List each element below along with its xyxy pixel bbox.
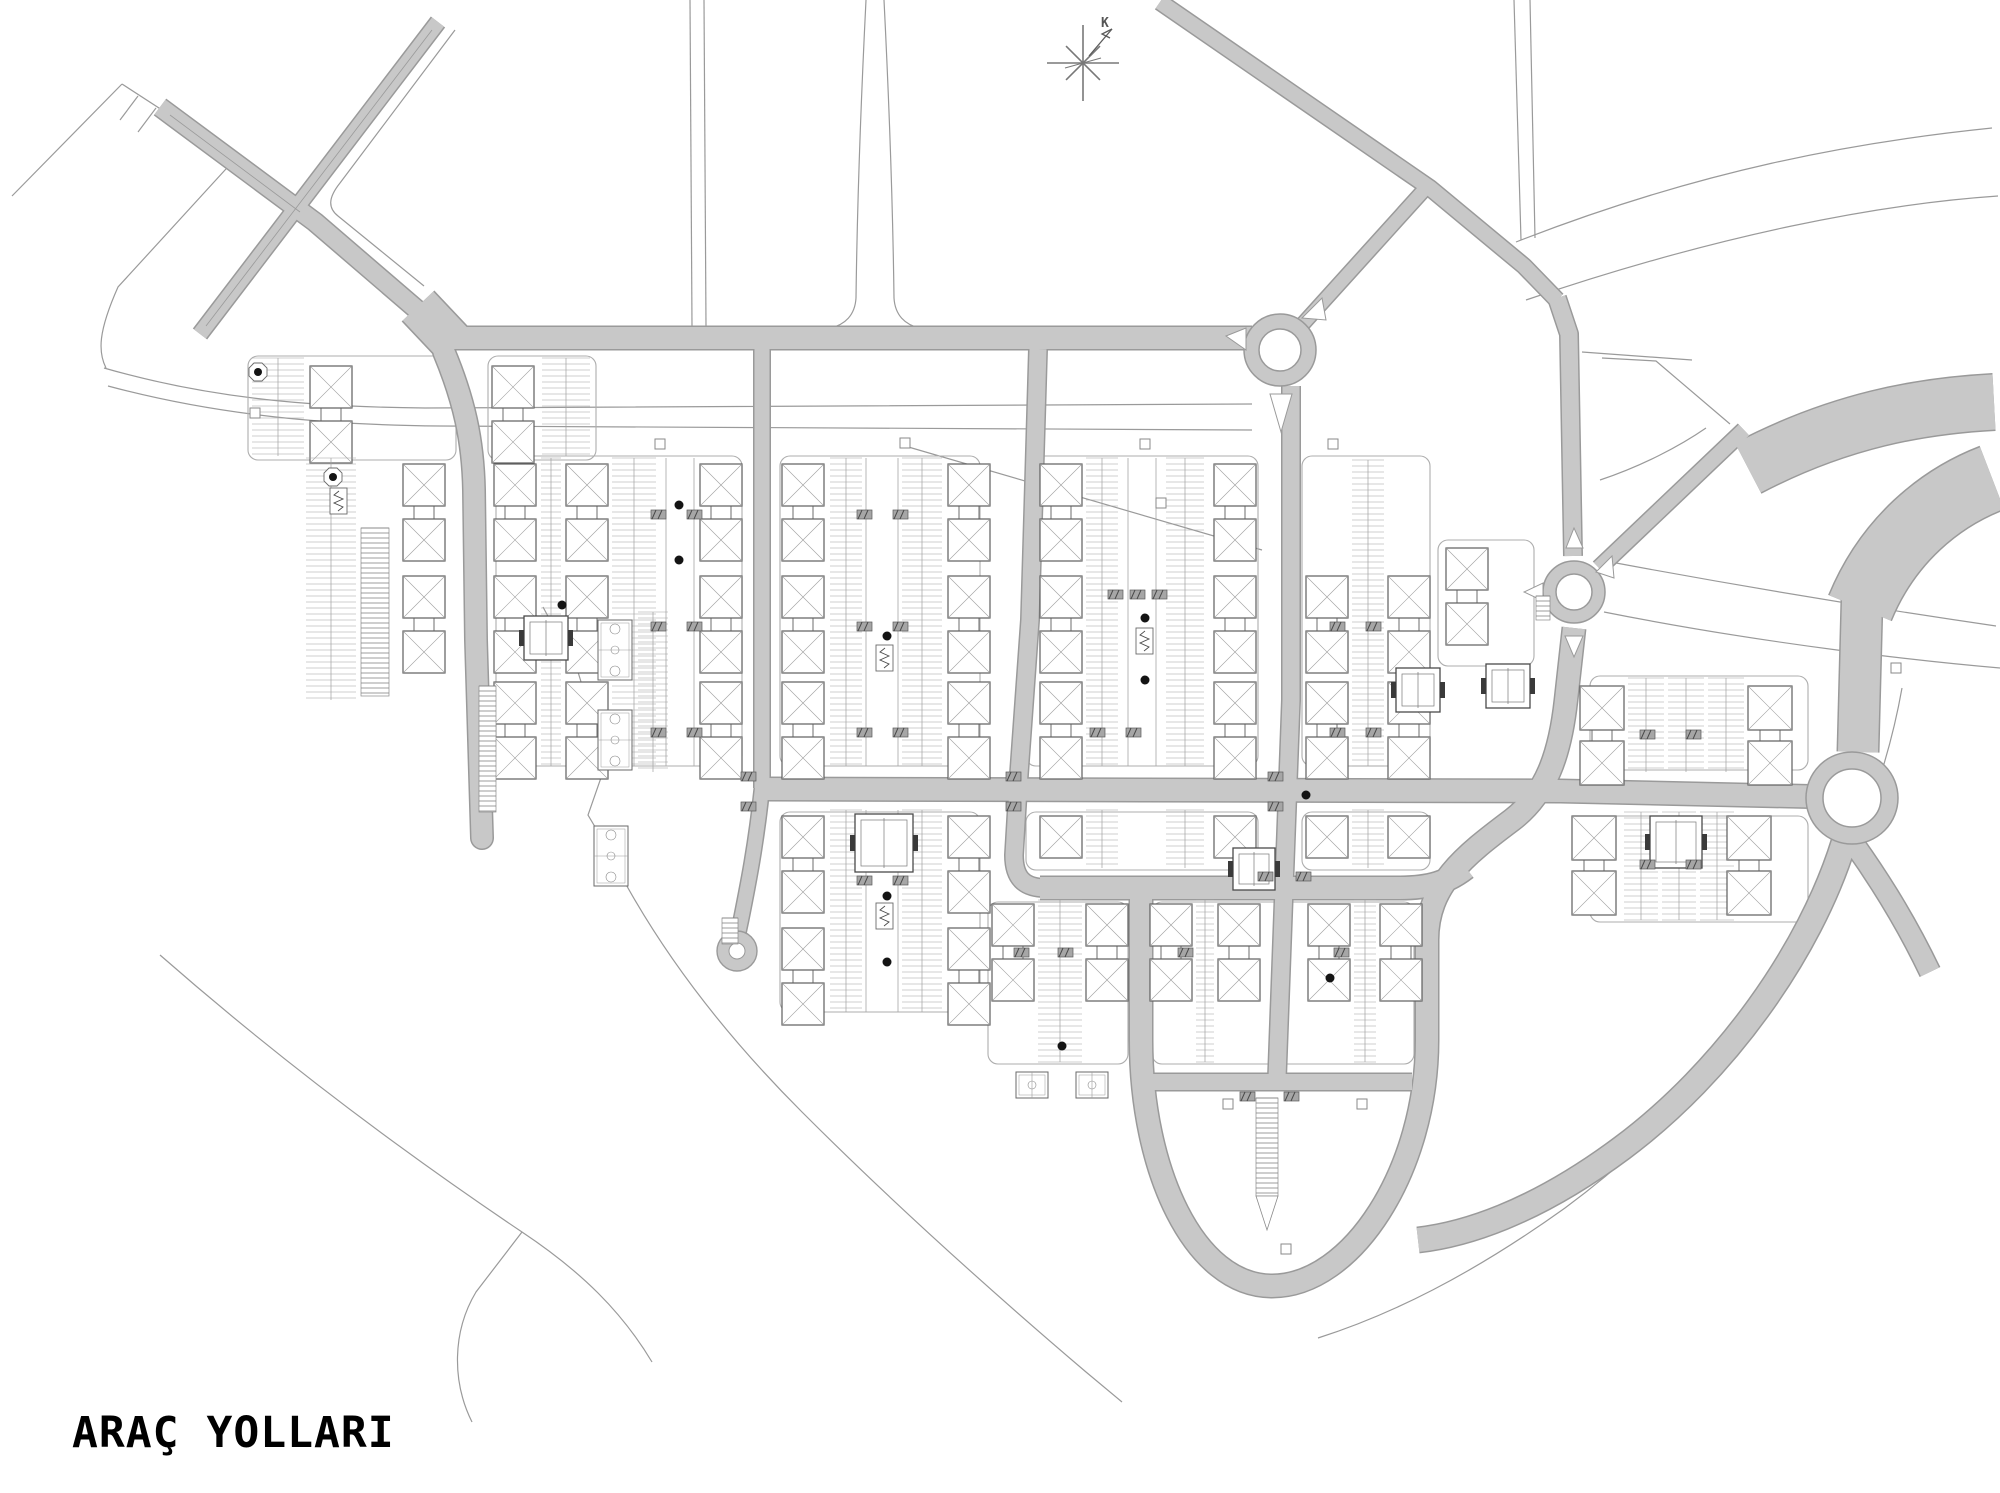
tree-icon bbox=[883, 632, 892, 641]
compass-north-label: K bbox=[1101, 16, 1109, 31]
utility-marker bbox=[1140, 439, 1150, 449]
stairs-strip bbox=[722, 918, 738, 944]
building-connector bbox=[959, 618, 979, 631]
tree-icon bbox=[254, 368, 262, 376]
building-connector bbox=[1399, 618, 1419, 631]
building-connector bbox=[793, 724, 813, 737]
building-connector bbox=[1399, 724, 1419, 737]
core-bar bbox=[1530, 678, 1535, 694]
thin-road-line bbox=[1516, 128, 1992, 242]
road-v6-and-loop bbox=[1141, 628, 1574, 1286]
utility-marker bbox=[655, 439, 665, 449]
stairs-strip bbox=[479, 686, 496, 812]
tree-icon bbox=[1058, 1042, 1067, 1051]
building-connector bbox=[959, 858, 979, 871]
building-connector bbox=[959, 506, 979, 519]
building-connector bbox=[577, 618, 597, 631]
roundabout-island bbox=[1556, 574, 1592, 610]
thin-road-line bbox=[1604, 612, 2000, 668]
tree-icon bbox=[883, 892, 892, 901]
thin-road-line bbox=[120, 96, 138, 120]
road-edge-arc-south bbox=[1418, 842, 1844, 1240]
core-bar bbox=[913, 835, 918, 851]
core-bar bbox=[568, 630, 573, 646]
building-connector bbox=[1051, 724, 1071, 737]
legend-title: ARAÇ YOLLARI bbox=[72, 1408, 395, 1458]
utility-marker bbox=[1891, 663, 1901, 673]
tree-icon bbox=[1302, 791, 1311, 800]
thin-road-line bbox=[704, 0, 706, 326]
core-bar bbox=[1275, 861, 1280, 877]
thin-road-line bbox=[457, 1232, 522, 1422]
site-plan-page: K ARAÇ YOLLARI bbox=[0, 0, 2000, 1493]
building-connector bbox=[577, 506, 597, 519]
core-bar bbox=[1645, 834, 1650, 850]
utility-marker bbox=[1156, 498, 1166, 508]
building-connector bbox=[793, 858, 813, 871]
thin-road-line bbox=[690, 0, 692, 326]
building-connector bbox=[321, 408, 341, 421]
thin-road-line bbox=[1526, 196, 1998, 300]
building-connector bbox=[711, 506, 731, 519]
building-connector bbox=[505, 506, 525, 519]
thin-road-line bbox=[1530, 0, 1535, 238]
utility-marker bbox=[1281, 1244, 1291, 1254]
core-bar bbox=[850, 835, 855, 851]
building-connector bbox=[959, 724, 979, 737]
building-connector bbox=[505, 724, 525, 737]
core-bar bbox=[1391, 682, 1396, 698]
thin-road-line bbox=[138, 108, 156, 132]
compass-rose: K bbox=[1047, 16, 1119, 101]
roundabout-island bbox=[1823, 769, 1881, 827]
thin-road-line bbox=[884, 0, 920, 328]
building-connector bbox=[1097, 946, 1117, 959]
road-edge-v6-and-loop bbox=[1141, 628, 1574, 1286]
road-centerline bbox=[170, 115, 300, 212]
utility-marker bbox=[1357, 1099, 1367, 1109]
culdesac-island bbox=[729, 943, 745, 959]
thin-road-line bbox=[101, 158, 236, 368]
building-connector bbox=[793, 618, 813, 631]
building-connector bbox=[711, 724, 731, 737]
tree-icon bbox=[675, 556, 684, 565]
core-bar bbox=[519, 630, 524, 646]
tree-icon bbox=[558, 601, 567, 610]
core-bar bbox=[1702, 834, 1707, 850]
tree-icon bbox=[1326, 974, 1335, 983]
tree-icon bbox=[1141, 676, 1150, 685]
thin-road-line bbox=[160, 955, 652, 1362]
thin-road-line bbox=[830, 0, 866, 328]
core-bar bbox=[1481, 678, 1486, 694]
road-arc-se-stub bbox=[1854, 844, 1930, 972]
core-bar bbox=[1228, 861, 1233, 877]
thin-road-line bbox=[1514, 0, 1521, 240]
thin-road-line bbox=[1602, 358, 1730, 424]
building-connector bbox=[505, 618, 525, 631]
north-arrow bbox=[1089, 29, 1112, 56]
road-funnel bbox=[418, 306, 452, 342]
thin-road-line bbox=[108, 386, 1252, 430]
road-v4 bbox=[1277, 386, 1291, 1078]
road-interchange-c bbox=[1858, 600, 1862, 752]
utility-marker bbox=[1328, 439, 1338, 449]
building-connector bbox=[503, 408, 523, 421]
building-connector bbox=[577, 724, 597, 737]
building-connector bbox=[1229, 946, 1249, 959]
road-v1 bbox=[444, 352, 482, 838]
building-connector bbox=[1225, 618, 1245, 631]
road-ne-approach bbox=[1599, 430, 1744, 568]
utility-marker bbox=[250, 408, 260, 418]
utility-marker bbox=[900, 438, 910, 448]
tree-icon bbox=[883, 958, 892, 967]
roundabout-island bbox=[1259, 329, 1301, 371]
road-arc-south bbox=[1418, 842, 1844, 1240]
building-connector bbox=[793, 970, 813, 983]
building-connector bbox=[1225, 724, 1245, 737]
stairs-taper bbox=[1256, 1196, 1278, 1230]
road-diagonal-nwse bbox=[160, 107, 443, 332]
building-connector bbox=[414, 506, 434, 519]
thin-road-line bbox=[12, 84, 122, 196]
tree-icon bbox=[675, 501, 684, 510]
building-connector bbox=[959, 970, 979, 983]
building-connector bbox=[1457, 590, 1477, 603]
building-connector bbox=[1051, 618, 1071, 631]
building-connector bbox=[711, 618, 731, 631]
core-bar bbox=[1440, 682, 1445, 698]
building-connector bbox=[414, 618, 434, 631]
thin-road-line bbox=[1600, 560, 1996, 626]
tree-icon bbox=[1141, 614, 1150, 623]
building-connector bbox=[1225, 506, 1245, 519]
tree-icon bbox=[329, 473, 337, 481]
site-plan-drawing: K ARAÇ YOLLARI bbox=[0, 0, 2000, 1493]
road-h2-middle bbox=[757, 789, 1832, 797]
building-connector bbox=[1051, 506, 1071, 519]
building-connector bbox=[793, 506, 813, 519]
road-interchange-b bbox=[1860, 478, 1992, 608]
utility-marker bbox=[1223, 1099, 1233, 1109]
thin-road-line bbox=[1582, 352, 1692, 360]
building-connector bbox=[1391, 946, 1411, 959]
